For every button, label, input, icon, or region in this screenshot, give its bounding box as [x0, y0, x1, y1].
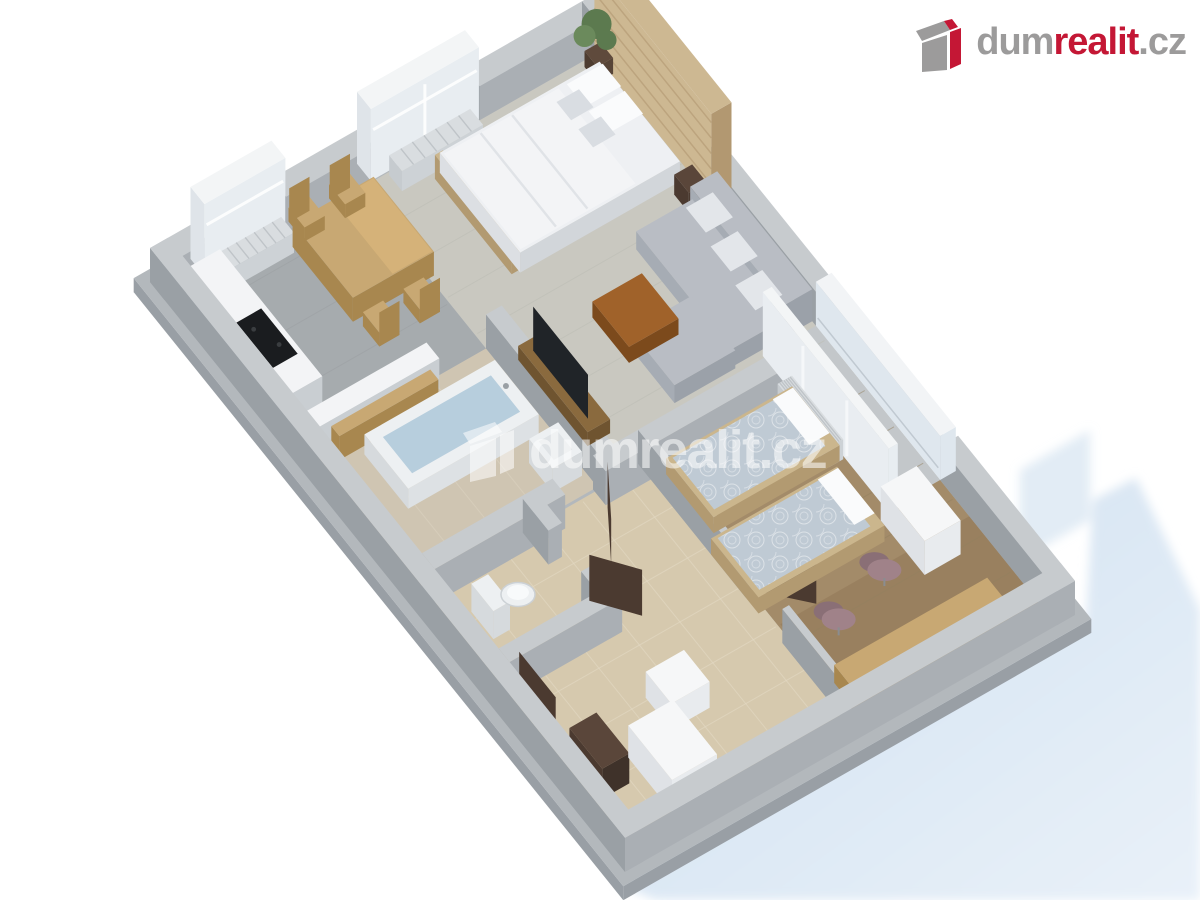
floorplan-scene	[0, 0, 1200, 900]
dumrealit-logo: dumrealit.cz	[914, 16, 1186, 72]
logo-text-cz: .cz	[1138, 21, 1186, 63]
logo-text-dum: dum	[976, 21, 1053, 63]
dumrealit-box-icon	[914, 16, 966, 72]
logo-text-realit: realit	[1053, 21, 1138, 63]
logo-text: dumrealit.cz	[976, 16, 1186, 68]
property-floorplan-render: dumrealit.cz dumrealit.cz	[0, 0, 1200, 900]
